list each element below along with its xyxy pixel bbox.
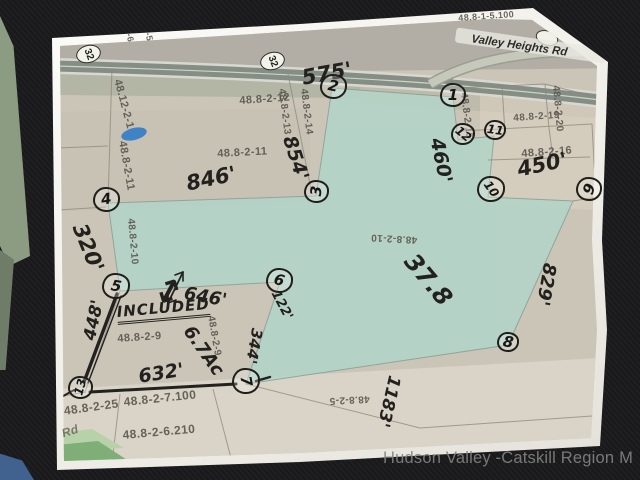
marker-digit: 8 [501,332,514,352]
marker-digit: 12 [452,123,474,144]
corner-marker-5: 5 [102,273,130,299]
marker-digit: 13 [71,377,89,397]
marker-digit: 10 [480,178,501,200]
marker-digit: 2 [326,76,340,96]
corner-marker-layer: 12345678910111213 [0,0,640,480]
marker-digit: 9 [579,181,599,197]
marker-digit: 11 [486,122,504,138]
marker-digit: 3 [307,185,326,197]
corner-marker-8: 8 [497,332,519,352]
marker-digit: 4 [100,189,113,208]
corner-marker-11: 11 [484,120,506,140]
photo-of-parcel-map: Valley Heights Rd 32 32 48.8-1-5.1001-51… [0,0,640,480]
watermark-text: Hudson Valley -Catskill Region M [383,449,633,468]
corner-marker-7: 7 [232,368,260,394]
marker-digit: 1 [448,86,458,104]
corner-marker-6: 6 [266,268,293,293]
marker-digit: 7 [236,374,256,387]
corner-marker-2: 2 [320,74,347,99]
marker-digit: 6 [272,270,287,290]
corner-marker-1: 1 [440,83,466,107]
corner-marker-3: 3 [304,180,329,203]
marker-digit: 5 [109,276,122,296]
corner-marker-4: 4 [93,187,120,212]
corner-marker-9: 9 [576,177,602,201]
corner-marker-12: 12 [451,123,475,145]
corner-marker-10: 10 [477,176,505,202]
corner-marker-13: 13 [68,376,93,399]
paper-map-sheet: Valley Heights Rd 32 32 48.8-1-5.1001-51… [0,0,640,480]
